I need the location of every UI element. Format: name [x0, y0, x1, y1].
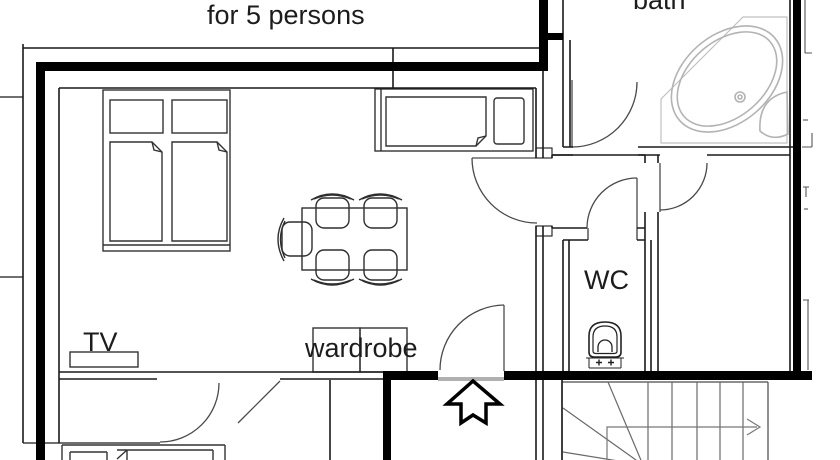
tv-label: TV	[83, 327, 118, 357]
door-swing-icon	[587, 178, 637, 228]
room-label-bath: bath	[633, 0, 686, 15]
door-swing-icon	[160, 381, 280, 442]
wardrobe-label: wardrobe	[304, 333, 418, 363]
capacity-label: for 5 persons	[207, 0, 365, 30]
twin-beds-icon	[103, 90, 230, 251]
dining-set-icon	[278, 194, 407, 285]
dining-table-icon	[302, 208, 407, 270]
chair-icon	[311, 194, 354, 228]
door-swing-icon	[660, 163, 707, 212]
stairs-icon	[562, 382, 768, 460]
door-swing-icon	[440, 305, 504, 371]
door-swing-icon	[572, 80, 637, 147]
entrance-arrow-icon	[447, 381, 500, 423]
floor-plan-drawing: for 5 persons bath WC TV wardrobe	[0, 0, 840, 460]
entrance-threshold	[438, 377, 504, 381]
walls-thick	[36, 0, 812, 460]
chair-icon	[278, 218, 312, 261]
stair-direction-arrow-icon	[607, 419, 760, 460]
chair-icon	[311, 250, 354, 285]
door-swings	[160, 80, 707, 442]
room-label-wc: WC	[584, 265, 629, 295]
dimension-marks	[802, 0, 812, 370]
chair-icon	[359, 194, 402, 228]
floor-plan: for 5 persons bath WC TV wardrobe	[0, 0, 840, 460]
single-bed-icon	[375, 89, 533, 151]
toilet-icon	[586, 322, 624, 368]
door-swing-icon	[472, 158, 537, 223]
corner-bathtub-icon	[651, 4, 804, 153]
lower-bed-icon	[62, 445, 225, 460]
chair-icon	[359, 250, 402, 285]
